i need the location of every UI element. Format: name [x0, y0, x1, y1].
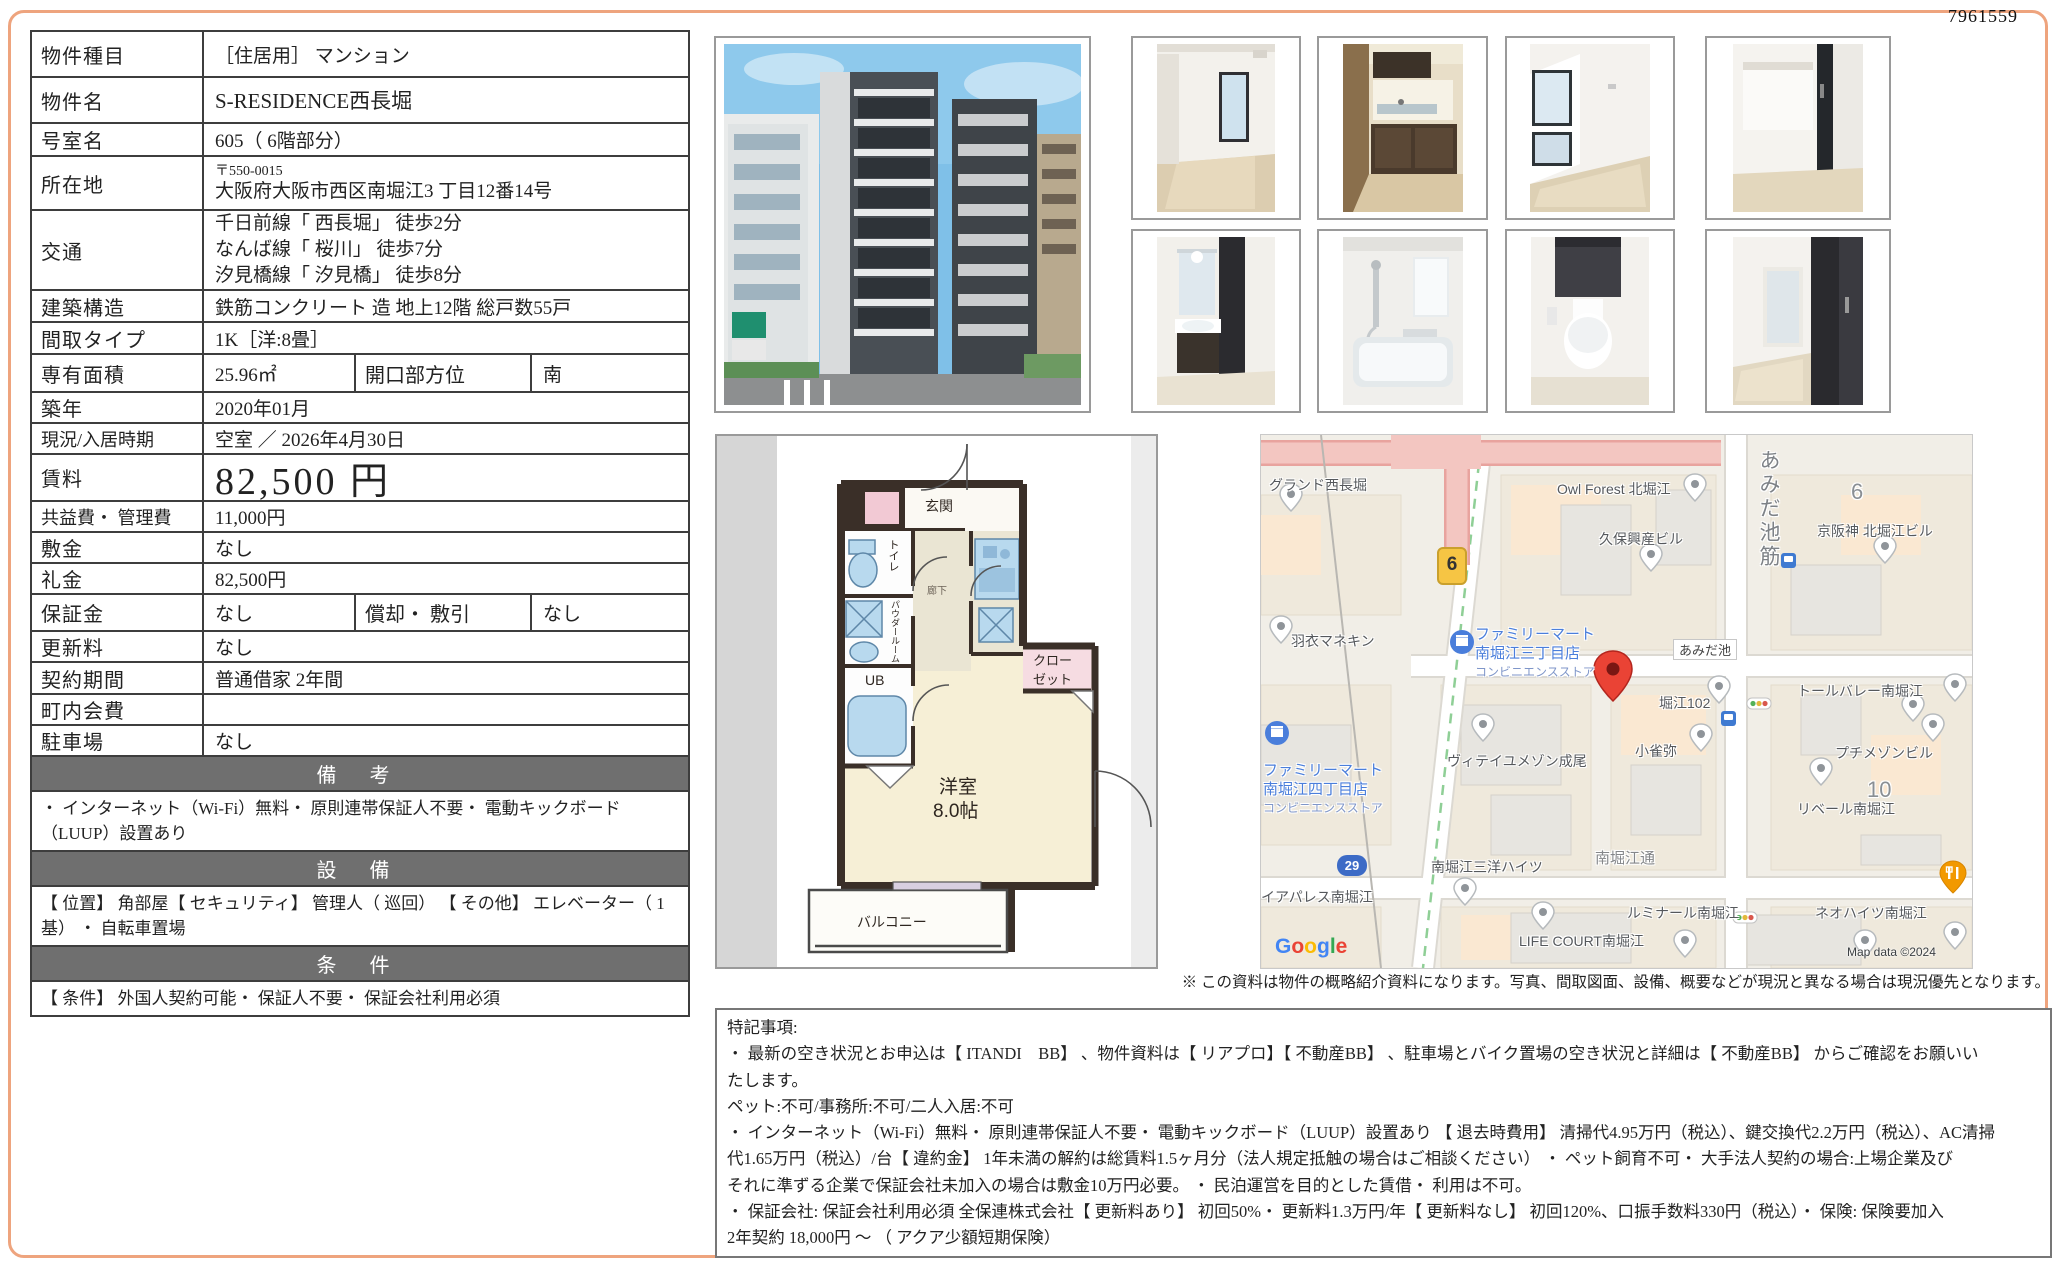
map-label: プチメゾンビル — [1835, 743, 1933, 763]
google-logo: Google — [1275, 935, 1347, 959]
table-row: 築年2020年01月 — [32, 393, 688, 424]
plan-label-entrance: 玄関 — [913, 496, 965, 516]
photo-toilet — [1505, 229, 1675, 413]
table-row: 号室名605（ 6階部分） — [32, 124, 688, 157]
table-row: 所在地 〒550-0015大阪府大阪市西区南堀江3 丁目12番14号 — [32, 157, 688, 211]
photo-room-windows — [1505, 36, 1675, 220]
note-line: たします。 — [727, 1068, 2040, 1094]
table-row: 物件種目［住居用］ マンション — [32, 32, 688, 78]
photo-washbasin — [1131, 229, 1301, 413]
special-notes-box: 特記事項: ・ 最新の空き状況とお申込は【 ITANDI BB】 、物件資料は【… — [715, 1008, 2052, 1258]
photo-building-exterior — [714, 36, 1091, 413]
disclaimer-note: ※ この資料は物件の概略紹介資料になります。写真、間取図面、設備、概要などが現況… — [1182, 970, 2050, 992]
plan-label-hallway: 廊下 — [927, 582, 947, 597]
route-shield-6: 6 — [1437, 547, 1467, 585]
photo-kitchen — [1317, 36, 1488, 220]
map-label: 南堀江三洋ハイツ — [1431, 857, 1543, 877]
table-row: 間取タイプ1K［洋:8畳］ — [32, 323, 688, 355]
plan-label-room: 洋室 — [939, 772, 977, 799]
map-street-label: 南堀江通 — [1595, 847, 1655, 868]
table-row: 建築構造鉄筋コンクリート 造 地上12階 総戸数55戸 — [32, 291, 688, 323]
floor-plan: 玄関 トイレ パウダールーム UB 廊下 クローゼット 洋室 8.0帖 バルコニ… — [715, 434, 1158, 969]
map-label-familymart-4chome: ファミリーマート 南堀江四丁目店 コンビニエンスストア — [1263, 761, 1383, 818]
plan-label-balcony: バルコニー — [857, 912, 927, 932]
conditions-section-header: 条 件 — [32, 947, 688, 982]
table-row: 更新料なし — [32, 632, 688, 663]
note-line: ・ 保証会社: 保証会社利用必須 全保連株式会社【 更新料あり】 初回50%・ … — [727, 1199, 2040, 1225]
table-row: 契約期間普通借家 2年間 — [32, 663, 688, 695]
plan-label-room-size: 8.0帖 — [933, 796, 978, 823]
map-label: 京阪神 北堀江ビル — [1817, 521, 1933, 541]
map-label: Owl Forest 北堀江 — [1557, 479, 1671, 499]
property-table: 物件種目［住居用］ マンション 物件名S-RESIDENCE西長堀 号室名605… — [30, 30, 690, 1017]
table-row: 交通 千日前線「 西長堀」 徒歩2分 なんば線「 桜川」 徒歩7分 汐見橋線「 … — [32, 211, 688, 291]
note-line: それに準ずる企業で保証会社未加入の場合は敷金10万円必要。 ・ 民泊運営を目的と… — [727, 1173, 2040, 1199]
access-line: 汐見橋線「 汐見橋」 徒歩8分 — [215, 263, 462, 289]
note-line: ・ 最新の空き状況とお申込は【 ITANDI BB】 、物件資料は【 リアプロ】… — [727, 1041, 2040, 1067]
note-line: 2年契約 18,000円 ～ （ アクア少額短期保険） — [727, 1225, 2040, 1251]
property-sheet-page: { "doc_id": "7961559", "colors": {"page_… — [0, 0, 2056, 1264]
transit-station-icon — [1721, 711, 1736, 726]
map-label: イアパレス南堀江 — [1261, 887, 1373, 907]
access-line: 千日前線「 西長堀」 徒歩2分 — [215, 211, 462, 237]
photo-closet — [1705, 36, 1891, 220]
table-row: 専有面積 25.96㎡ 開口部方位 南 — [32, 355, 688, 393]
map-label: グランド西長堀 — [1269, 475, 1367, 495]
plan-label-toilet: トイレ — [885, 539, 901, 572]
table-row: 保証金 なし 償却・ 敷引 なし — [32, 595, 688, 632]
note-line: ペット:不可/事務所:不可/二人入居:不可 — [727, 1094, 2040, 1120]
map-label-familymart-3chome: ファミリーマート 南堀江三丁目店 コンビニエンスストア — [1475, 625, 1595, 682]
table-row-rent: 賃料82,500 円 — [32, 455, 688, 502]
photo-bathroom — [1317, 229, 1488, 413]
table-row: 町内会費 — [32, 695, 688, 726]
transit-station-icon — [1781, 553, 1796, 568]
equipment-text: 【 位置】 角部屋【 セキュリティ】 管理人（ 巡回） 【 その他】 エレベータ… — [32, 887, 688, 947]
map-label: トールバレー南堀江 — [1797, 681, 1923, 701]
remarks-text: ・ インターネット（Wi-Fi）無料・ 原則連帯保証人不要・ 電動キックボード（… — [32, 792, 688, 852]
access-line: なんば線「 桜川」 徒歩7分 — [215, 237, 443, 263]
map-label: ヴィテイユメゾン成尾 — [1447, 751, 1587, 771]
photo-corridor — [1705, 229, 1891, 413]
building-exterior-image — [724, 44, 1081, 405]
note-line: 特記事項: — [727, 1015, 2040, 1041]
route-shield-29: 29 — [1337, 855, 1367, 876]
location-map: グランド西長堀 Owl Forest 北堀江 久保興産ビル 京阪神 北堀江ビル … — [1260, 434, 1973, 969]
plan-label-powder-room: パウダールーム — [889, 600, 902, 662]
map-street-label-vertical: あみだ池筋 — [1753, 449, 1783, 569]
map-label: ネオハイツ南堀江 — [1815, 903, 1927, 923]
map-label: ルミナール南堀江 — [1627, 903, 1739, 923]
table-row: 駐車場なし — [32, 726, 688, 757]
map-block-number: 10 — [1867, 777, 1891, 803]
rent-amount: 82,500 円 — [204, 455, 688, 500]
map-copyright: Map data ©2024 — [1847, 945, 1936, 959]
document-id: 7961559 — [1948, 6, 2018, 27]
table-row: 共益費・ 管理費11,000円 — [32, 502, 688, 533]
remarks-section-header: 備 考 — [32, 757, 688, 792]
map-label: LIFE COURT南堀江 — [1519, 931, 1644, 951]
table-row: 敷金なし — [32, 533, 688, 564]
plan-label-unit-bath: UB — [865, 672, 884, 688]
map-block-number: 6 — [1851, 479, 1863, 505]
map-label: 小雀弥 — [1635, 741, 1677, 761]
conditions-text: 【 条件】 外国人契約可能・ 保証人不要・ 保証会社利用必須 — [32, 982, 688, 1015]
map-label-amidaike: あみだ池 — [1673, 639, 1737, 660]
note-line: 代1.65万円（税込）/台【 違約金】 1年未満の解約は総賃料1.5ヶ月分（法人… — [727, 1146, 2040, 1172]
plan-label-closet: クローゼット — [1033, 650, 1072, 688]
note-line: ・ インターネット（Wi-Fi）無料・ 原則連帯保証人不要・ 電動キックボード（… — [727, 1120, 2040, 1146]
address-text: 大阪府大阪市西区南堀江3 丁目12番14号 — [215, 180, 552, 204]
map-label: 堀江102 — [1659, 693, 1710, 713]
postal-code: 〒550-0015 — [215, 163, 283, 180]
map-label: 羽衣マネキン — [1291, 631, 1375, 651]
photo-hallway — [1131, 36, 1301, 220]
equipment-section-header: 設 備 — [32, 852, 688, 887]
map-label: 久保興産ビル — [1599, 529, 1683, 549]
table-row: 物件名S-RESIDENCE西長堀 — [32, 78, 688, 124]
table-row: 礼金82,500円 — [32, 564, 688, 595]
